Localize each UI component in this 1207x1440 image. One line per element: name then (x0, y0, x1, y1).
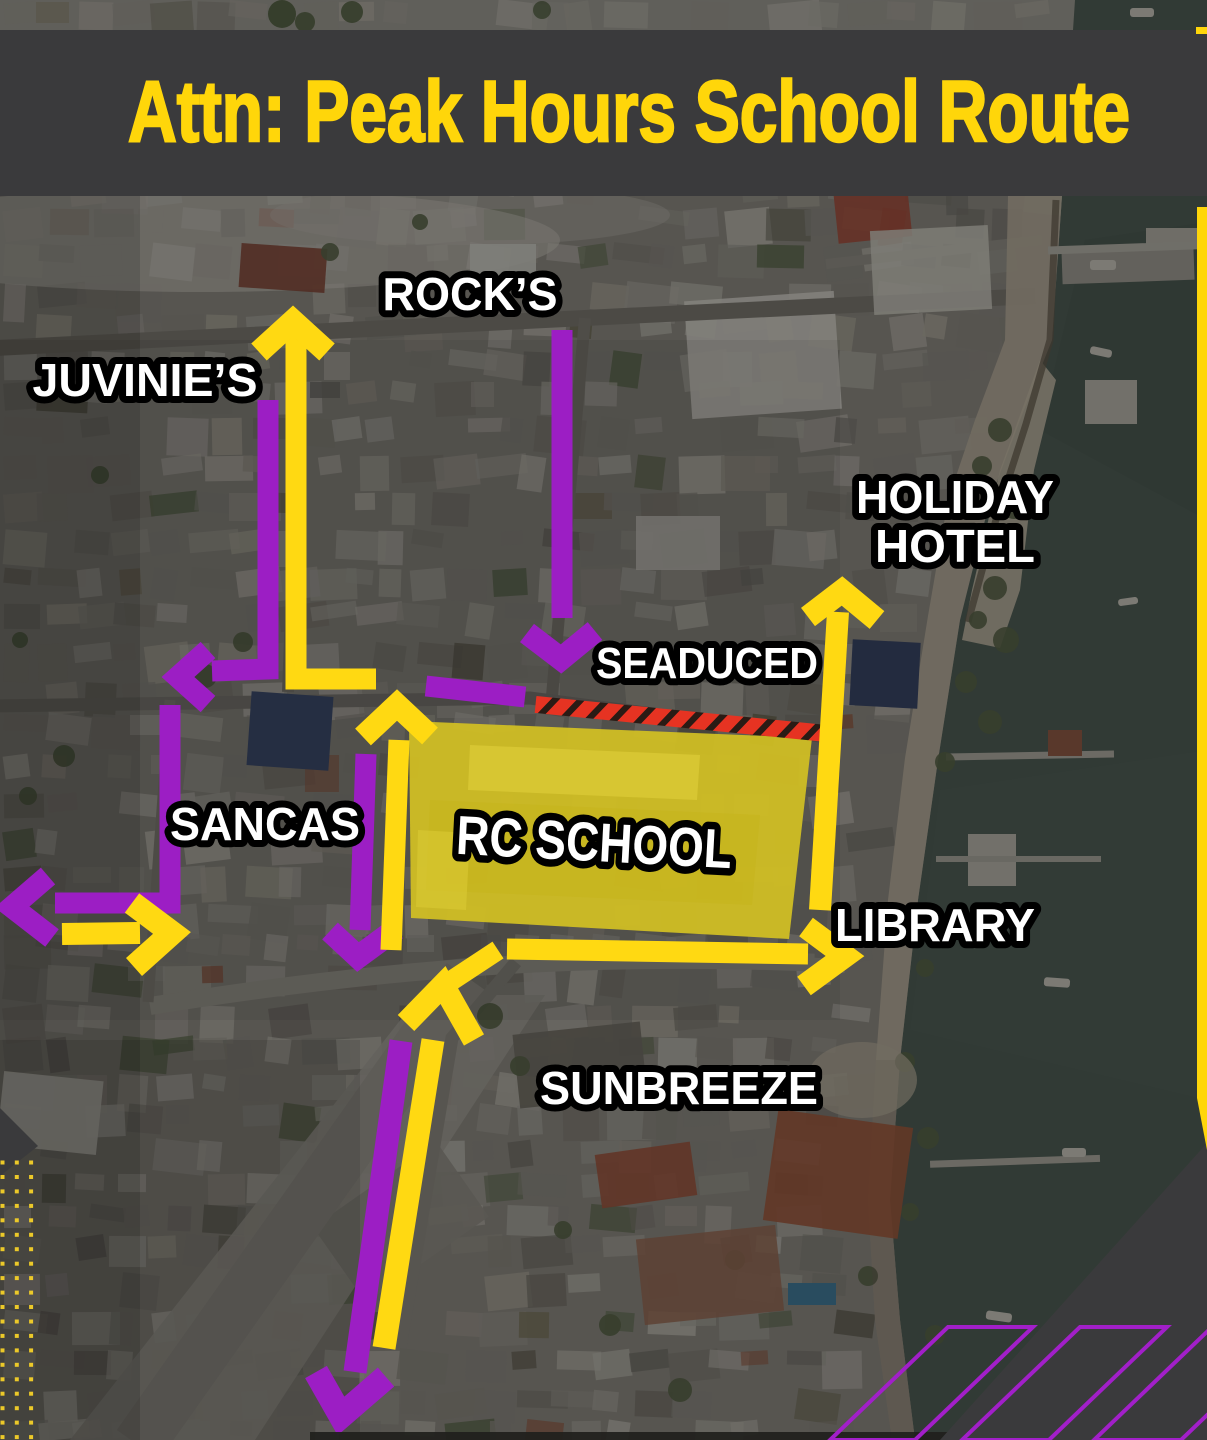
svg-text:SUNBREEZE: SUNBREEZE (540, 1062, 818, 1114)
svg-text:LIBRARY: LIBRARY (835, 899, 1035, 951)
svg-text:Attn: Peak Hours School Route: Attn: Peak Hours School Route (128, 64, 1130, 160)
svg-text:HOLIDAY: HOLIDAY (856, 471, 1054, 523)
svg-text:ROCK’S: ROCK’S (383, 268, 558, 320)
svg-text:JUVINIE’S: JUVINIE’S (33, 354, 258, 406)
svg-text:SEADUCED: SEADUCED (596, 639, 818, 688)
svg-text:SANCAS: SANCAS (170, 798, 360, 850)
svg-text:HOTEL: HOTEL (875, 520, 1035, 572)
